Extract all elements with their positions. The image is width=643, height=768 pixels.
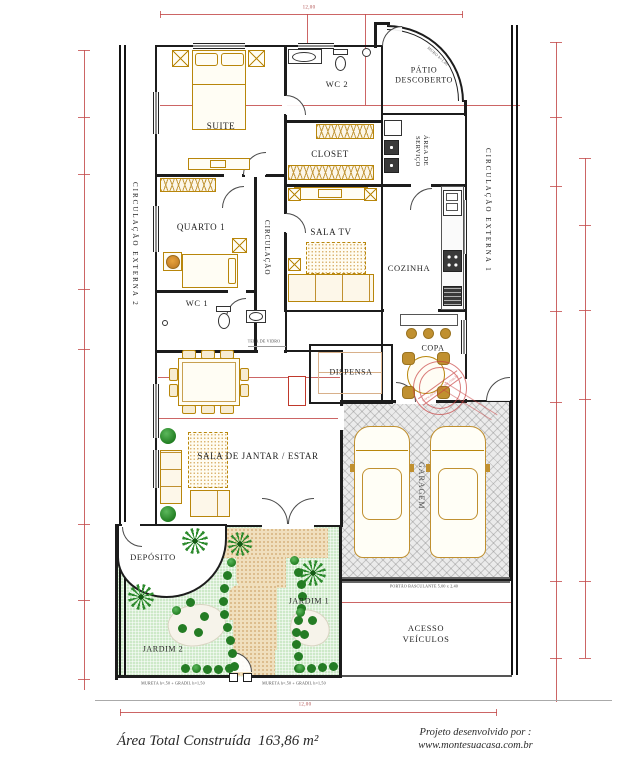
garden-wall-bottom-right: [247, 675, 342, 678]
dim-tick: [78, 174, 90, 175]
garden-path-3: [233, 617, 277, 650]
dim-tick: [579, 399, 591, 400]
door-patio-gate: [382, 26, 402, 46]
gate-post: [243, 673, 252, 682]
speaker-box-icon: [288, 258, 301, 271]
label-wc2: WC 2: [326, 79, 348, 89]
dim-tick: [579, 225, 591, 226]
dim-tick: [462, 11, 463, 18]
label-acesso-line2: VEÍCULOS: [403, 634, 450, 644]
dining-chair: [220, 405, 234, 414]
patio-wall-stub-h: [374, 22, 390, 25]
car-mirror: [409, 464, 414, 472]
window: [193, 43, 245, 49]
dim-tick: [78, 524, 90, 525]
niche-box: [288, 376, 306, 406]
car-roof: [438, 468, 478, 520]
door-copa-externa: [486, 377, 510, 401]
bed-blanket-line: [192, 84, 246, 85]
acesso-wall-left: [339, 581, 342, 677]
speaker-box-icon: [364, 188, 377, 201]
label-dispensa: DISPENSA: [329, 368, 372, 377]
dining-chair: [169, 384, 178, 397]
credit-line-2: www.montesuacasa.com.br: [393, 740, 558, 751]
door-gap: [228, 288, 246, 293]
window: [461, 320, 467, 354]
closet-wardrobe: [288, 165, 374, 180]
dim-tick: [120, 709, 121, 716]
sink-bowl: [446, 203, 458, 211]
car-hood-line: [356, 450, 408, 451]
dim-tick: [160, 11, 161, 18]
label-jardim2: JARDIM 2: [143, 645, 184, 654]
dining-chair: [240, 368, 249, 381]
garden-wall-bottom-left: [115, 675, 233, 678]
bar-counter: [400, 314, 458, 326]
quarto1-wardrobe: [160, 178, 216, 192]
palm-plant-icon: [128, 584, 154, 610]
annotation-portao: PORTÃO BASCULANTE 5,00 x 2,40: [390, 584, 458, 589]
window: [153, 450, 159, 488]
label-cozinha: COZINHA: [388, 263, 430, 273]
dining-chair: [201, 405, 215, 414]
potted-plant-icon: [160, 506, 176, 522]
palm-plant-icon: [182, 528, 208, 554]
total-area-value: 163,86 m²: [258, 733, 318, 750]
door-gap: [224, 172, 242, 177]
label-circulacao-externa-1: CIRCULAÇÃO EXTERNA 1: [484, 148, 492, 273]
label-closet: CLOSET: [311, 149, 349, 159]
dim-tick: [550, 581, 562, 582]
bed-pillow: [195, 53, 218, 66]
nightstand-icon: [248, 50, 265, 67]
door-gap: [384, 307, 438, 312]
dining-chair: [169, 368, 178, 381]
dim-tick: [78, 117, 90, 118]
window: [153, 384, 159, 438]
speaker-box-icon: [232, 238, 247, 253]
dim-tick: [78, 349, 90, 350]
closet-wardrobe: [316, 124, 374, 139]
bush-cluster: [192, 664, 201, 673]
gate-post: [229, 673, 238, 682]
bed-pillow: [221, 53, 244, 66]
label-sala-jantar: SALA DE JANTAR / ESTAR: [197, 451, 318, 461]
door-gap: [338, 406, 344, 430]
label-circulacao: CIRCULAÇÃO: [263, 220, 271, 276]
garage-gate-line: [342, 581, 510, 583]
garden-wall-left: [115, 524, 118, 680]
car-mirror: [426, 464, 431, 472]
car-mirror: [350, 464, 355, 472]
label-patio-line2: DESCOBERTO: [395, 76, 453, 85]
wc2-toilet-tank: [333, 49, 348, 55]
dining-table-inner: [182, 362, 236, 402]
bush-cluster: [296, 608, 305, 617]
lamp-icon: [166, 255, 180, 269]
dim-line-top-mid: [307, 14, 308, 45]
bed-pillow: [228, 258, 236, 284]
window: [153, 206, 159, 252]
dim-tick: [550, 311, 562, 312]
bush-cluster: [290, 556, 299, 565]
dim-tick: [78, 600, 90, 601]
dim-tick: [550, 42, 562, 43]
garage-gate-line: [342, 577, 510, 579]
dim-tick: [78, 289, 90, 290]
dim-tick: [496, 709, 497, 716]
label-patio-line1: PÁTIO: [411, 66, 438, 75]
dim-tick: [550, 186, 562, 187]
wc1-sink: [249, 312, 263, 321]
nightstand-icon: [172, 50, 189, 67]
dining-chair: [240, 384, 249, 397]
boundary-right-inner: [516, 25, 518, 675]
dim-tick: [579, 158, 591, 159]
window: [153, 92, 159, 134]
bar-stool: [440, 328, 451, 339]
wc2-sink: [292, 52, 316, 62]
dim-label-top: 12,00: [303, 6, 316, 11]
lot-front-line: [339, 675, 512, 677]
dim-line-right-inner: [556, 42, 557, 702]
sala-tv-sofa: [288, 274, 374, 302]
garden-path-1: [236, 556, 286, 588]
total-area-label: Área Total Construída: [117, 733, 251, 750]
potted-plant-icon: [160, 428, 176, 444]
oven-icon: [443, 286, 462, 306]
dim-line-bottom: [120, 712, 497, 713]
speaker-box-icon: [288, 188, 301, 201]
credit-line-1: Projeto desenvolvido por :: [393, 727, 558, 738]
dining-chair: [182, 405, 196, 414]
boundary-left-outer: [119, 45, 121, 678]
dim-tick: [78, 679, 90, 680]
wc1-toilet-tank: [216, 306, 231, 312]
boundary-left-inner: [124, 45, 126, 678]
label-sala-tv: SALA TV: [310, 227, 351, 237]
dim-tick: [579, 658, 591, 659]
sink-bowl: [446, 193, 458, 201]
garden-path-2: [229, 585, 277, 620]
dim-tick: [550, 402, 562, 403]
annotation-mureta-direita: MURETA h=,50 + GRADIL h=1,50: [262, 681, 326, 686]
palm-plant-icon: [300, 560, 326, 586]
dim-label-bottom: 12,00: [299, 703, 312, 708]
label-quarto1: QUARTO 1: [177, 222, 225, 232]
estar-sofa-left: [160, 450, 182, 504]
label-acesso-line1: ACESSO: [408, 623, 444, 633]
house-floor-plan: 12,00 12,00: [0, 0, 643, 768]
wc2-toilet: [335, 56, 346, 71]
car-roof: [362, 468, 402, 520]
approval-stamp: www.montesuacasa.com.br: [413, 361, 467, 415]
bar-stool: [423, 328, 434, 339]
door-gap: [258, 348, 284, 354]
dim-line-right-outer: [585, 158, 586, 658]
patio-wall-stub-v: [374, 22, 377, 48]
car-hood-line: [432, 450, 484, 451]
stove-icon: [443, 250, 462, 272]
estar-loveseat: [190, 490, 230, 517]
annotation-mureta-esquerda: MURETA h=,50 + GRADIL h=1,50: [141, 681, 205, 686]
sidewalk-line: [95, 700, 612, 701]
label-jardim1: JARDIM 1: [289, 597, 330, 606]
label-suite: SUITE: [207, 121, 236, 131]
bar-stool: [406, 328, 417, 339]
washer-icon: [384, 140, 399, 155]
car-mirror: [485, 464, 490, 472]
tv-icon: [318, 189, 342, 198]
bush-cluster: [172, 606, 181, 615]
bush-cluster: [227, 558, 236, 567]
dim-tick: [579, 581, 591, 582]
wc1-toilet: [218, 313, 230, 329]
dining-chair: [220, 350, 234, 359]
tela-vidro-line: [248, 346, 286, 347]
servico-wall-stub: [464, 100, 467, 116]
dim-line-left: [84, 50, 85, 690]
label-copa: COPA: [421, 344, 444, 353]
floor-drain-icon: [162, 320, 168, 326]
service-tank: [384, 120, 402, 136]
dim-tick: [579, 310, 591, 311]
label-area-servico: ÁREA DE SERVIÇO: [412, 119, 429, 183]
washer-icon: [384, 158, 399, 173]
dim-line-acesso: [342, 602, 511, 603]
annotation-tela-vidro: TELA DE VIDRO: [248, 339, 281, 344]
label-deposito: DEPÓSITO: [130, 552, 176, 562]
label-wc1: WC 1: [186, 298, 208, 308]
boundary-right-outer: [511, 25, 513, 675]
bush-cluster: [296, 664, 305, 673]
dining-chair: [182, 350, 196, 359]
dim-tick: [550, 658, 562, 659]
palm-plant-icon: [228, 532, 252, 556]
dining-chair: [201, 350, 215, 359]
label-garagem: GARAGEM: [417, 462, 426, 509]
label-circulacao-externa-2: CIRCULAÇÃO EXTERNA 2: [131, 182, 139, 307]
dim-tick: [78, 50, 90, 51]
sala-tv-rug: [306, 242, 366, 274]
dim-line-top: [160, 14, 463, 15]
dim-tick: [550, 117, 562, 118]
wc2-shower-head: [362, 48, 371, 57]
dresser-tv: [210, 160, 226, 168]
